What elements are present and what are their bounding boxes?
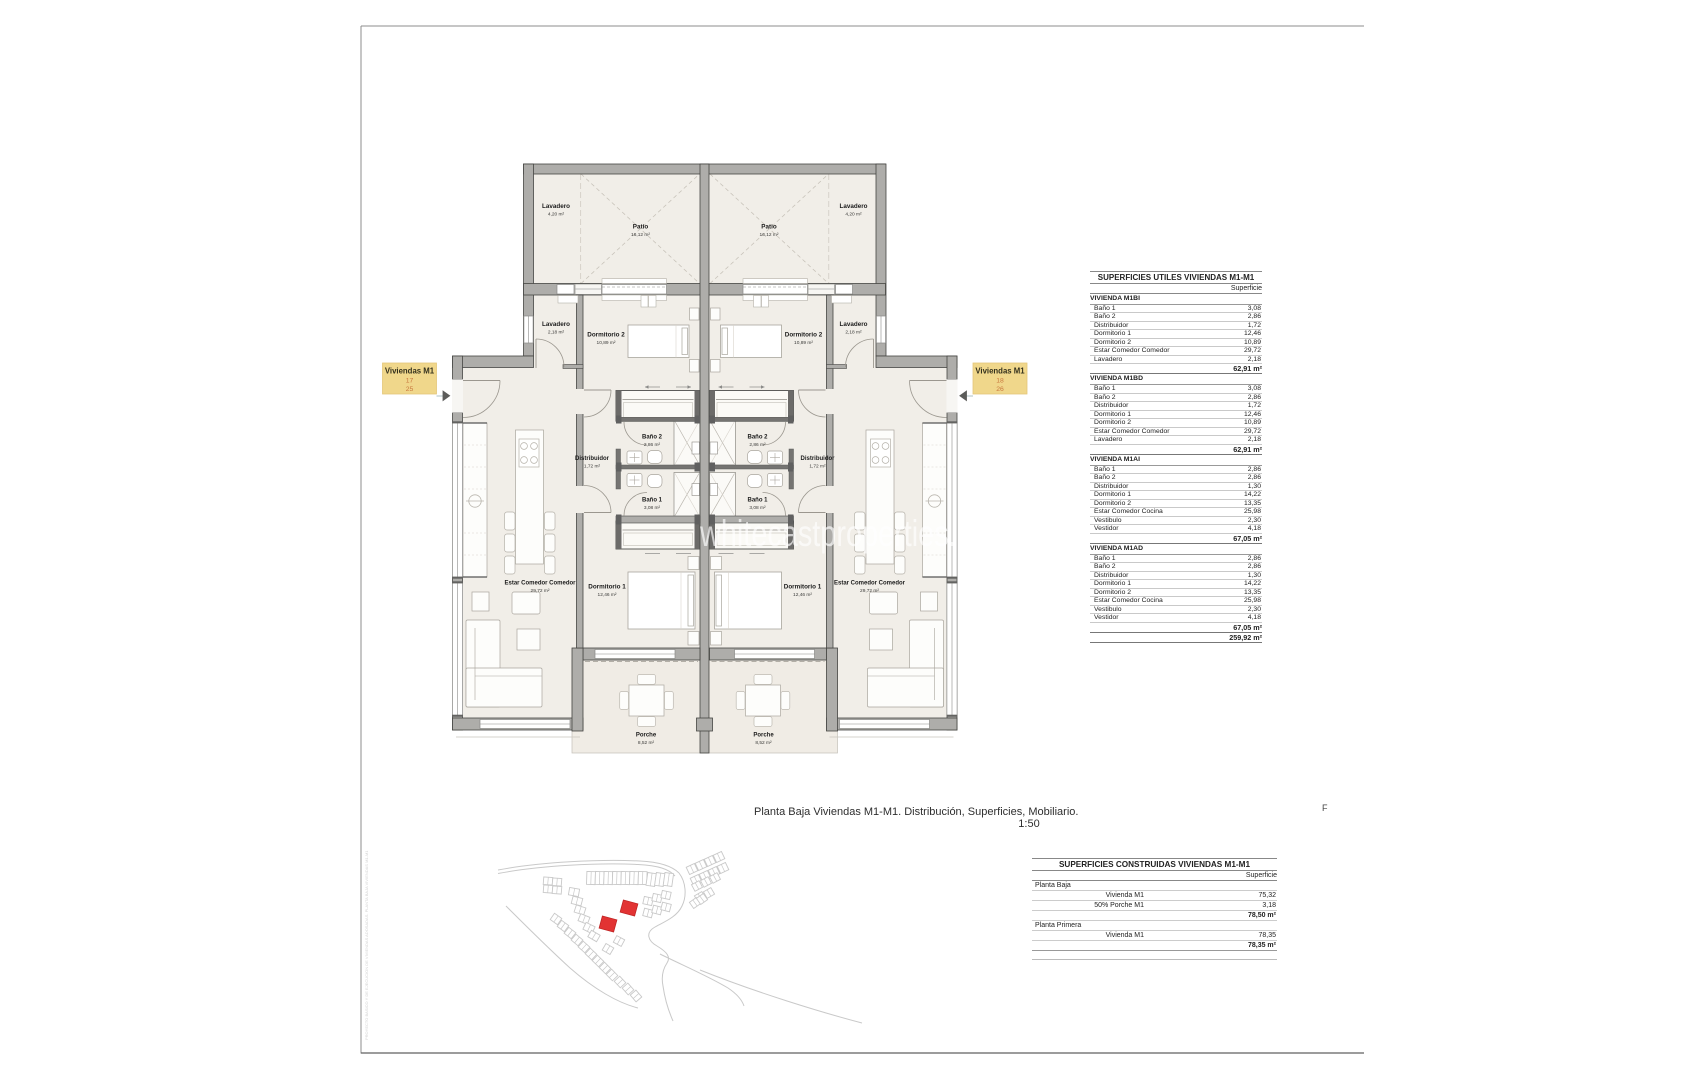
svg-text:12,46 m²: 12,46 m² — [598, 592, 617, 598]
svg-text:2,86 m²: 2,86 m² — [644, 442, 661, 448]
svg-text:10,89 m²: 10,89 m² — [794, 340, 813, 346]
svg-text:17: 17 — [406, 378, 414, 385]
svg-text:2,18 m²: 2,18 m² — [548, 330, 565, 336]
svg-text:Baño 1: Baño 1 — [642, 498, 663, 504]
svg-text:PROYECTO BASICO Y DE EJECUCION: PROYECTO BASICO Y DE EJECUCION DE VIVIEN… — [364, 850, 369, 1040]
svg-text:Lavadero: Lavadero — [840, 203, 868, 210]
svg-text:8,52 m²: 8,52 m² — [638, 740, 655, 746]
svg-text:Baño 2: Baño 2 — [642, 435, 663, 441]
svg-text:Baño 2: Baño 2 — [747, 435, 768, 441]
svg-text:Dormitorio 1: Dormitorio 1 — [784, 584, 822, 591]
svg-text:Distribuidor: Distribuidor — [801, 456, 836, 462]
svg-text:4,20 m²: 4,20 m² — [548, 212, 565, 218]
svg-text:Estar Comedor Comedor: Estar Comedor Comedor — [504, 581, 576, 587]
svg-text:2,18 m²: 2,18 m² — [845, 330, 862, 336]
svg-text:Patio: Patio — [761, 224, 777, 231]
svg-text:29,72 m²: 29,72 m² — [531, 588, 550, 594]
svg-text:Lavadero: Lavadero — [840, 321, 868, 328]
svg-text:Porche: Porche — [636, 733, 657, 739]
svg-text:Baño 1: Baño 1 — [747, 498, 768, 504]
svg-text:16,12 m²: 16,12 m² — [631, 232, 650, 238]
svg-text:10,89 m²: 10,89 m² — [597, 340, 616, 346]
svg-text:Dormitorio 2: Dormitorio 2 — [785, 332, 823, 339]
svg-text:16,12 m²: 16,12 m² — [760, 232, 779, 238]
svg-text:Dormitorio 2: Dormitorio 2 — [587, 332, 625, 339]
svg-text:3,08 m²: 3,08 m² — [644, 505, 661, 511]
svg-text:Porche: Porche — [753, 733, 774, 739]
svg-text:18: 18 — [996, 378, 1004, 385]
svg-text:Viviendas M1: Viviendas M1 — [975, 367, 1025, 376]
svg-text:Lavadero: Lavadero — [542, 203, 570, 210]
svg-text:3,08 m²: 3,08 m² — [749, 505, 766, 511]
svg-text:25: 25 — [406, 386, 414, 393]
svg-text:29,72 m²: 29,72 m² — [860, 588, 879, 594]
svg-text:Distribuidor: Distribuidor — [575, 456, 610, 462]
svg-text:26: 26 — [996, 386, 1004, 393]
svg-text:2,86 m²: 2,86 m² — [749, 442, 766, 448]
svg-text:8,52 m²: 8,52 m² — [755, 740, 772, 746]
svg-text:Patio: Patio — [633, 224, 649, 231]
svg-text:Lavadero: Lavadero — [542, 321, 570, 328]
svg-text:Estar Comedor Comedor: Estar Comedor Comedor — [834, 581, 906, 587]
svg-text:4,20 m²: 4,20 m² — [845, 212, 862, 218]
svg-text:Dormitorio 1: Dormitorio 1 — [588, 584, 626, 591]
svg-text:1,72 m²: 1,72 m² — [809, 464, 826, 470]
svg-text:Viviendas M1: Viviendas M1 — [385, 367, 435, 376]
svg-text:1,72 m²: 1,72 m² — [584, 464, 601, 470]
svg-text:12,46 m²: 12,46 m² — [793, 592, 812, 598]
